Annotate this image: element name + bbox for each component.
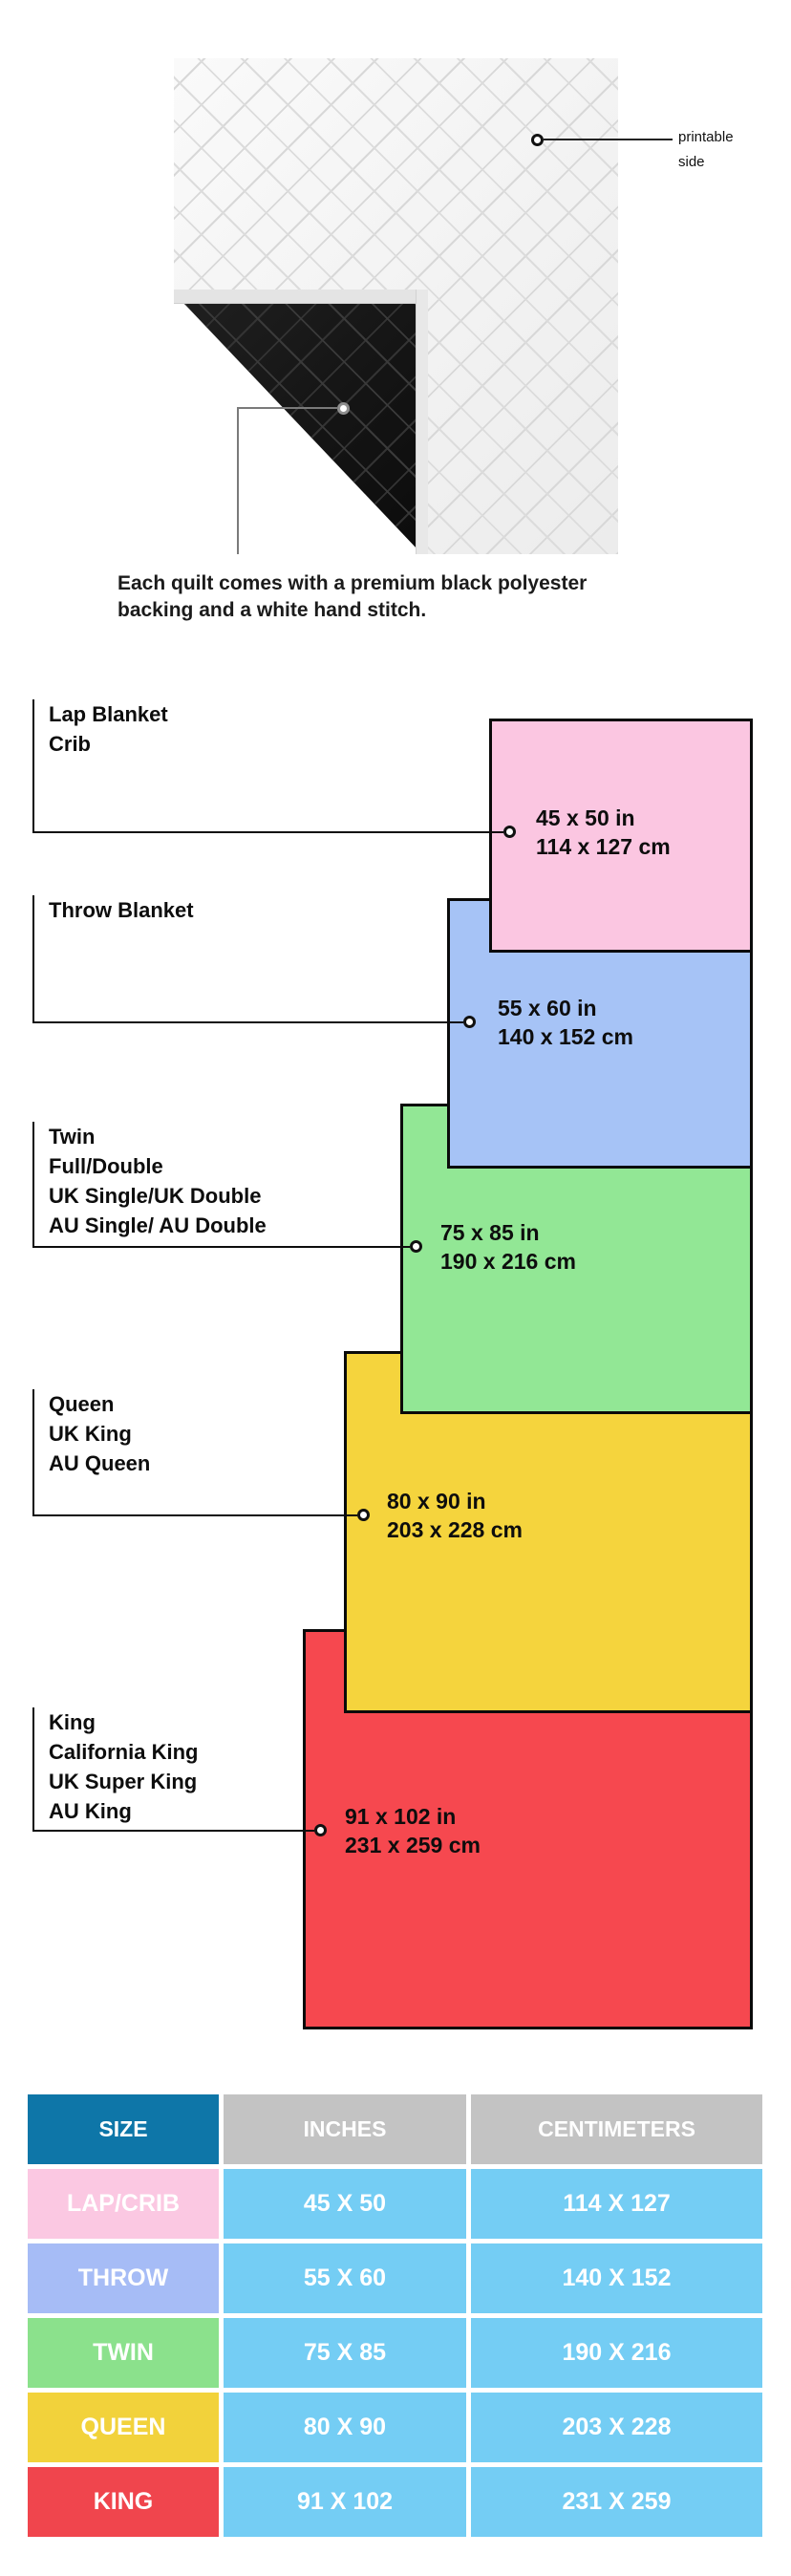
quilt-fold-edge <box>416 290 428 554</box>
lap-dimensions: 45 x 50 in 114 x 127 cm <box>536 804 671 861</box>
king-callout-rule <box>32 1707 34 1832</box>
lap-callout-rule <box>32 699 34 833</box>
quilt-black-backing-image <box>184 304 417 549</box>
table-row-twin-inches: 75 X 85 <box>224 2318 466 2388</box>
lap-callout-dot <box>503 826 516 838</box>
printable-side-label-line1: printable <box>678 125 734 150</box>
throw-callout-rule <box>32 895 34 1023</box>
queen-dim-cm: 203 x 228 cm <box>387 1515 523 1544</box>
table-row-queen-size: QUEEN <box>28 2393 219 2462</box>
table-header-inches: INCHES <box>224 2094 466 2164</box>
label-line: King <box>49 1707 198 1737</box>
printable-side-callout-dot <box>531 134 544 146</box>
table-row-throw-inches: 55 X 60 <box>224 2243 466 2313</box>
label-line: AU King <box>49 1796 198 1826</box>
twin-group-label: Twin Full/Double UK Single/UK Double AU … <box>49 1122 267 1240</box>
printable-side-label: printable side <box>678 125 734 175</box>
black-backing-callout-line-h <box>237 407 338 409</box>
quilt-size-infographic: printable side Each quilt comes with a p… <box>0 0 791 2576</box>
queen-callout-rule <box>32 1389 34 1516</box>
label-line: UK Super King <box>49 1767 198 1796</box>
throw-dim-cm: 140 x 152 cm <box>498 1022 633 1051</box>
queen-callout-dot <box>357 1509 370 1521</box>
twin-callout-dot <box>410 1240 422 1253</box>
king-group-label: King California King UK Super King AU Ki… <box>49 1707 198 1826</box>
label-line: Twin <box>49 1122 267 1151</box>
king-callout-line <box>32 1830 314 1832</box>
black-backing-callout-dot <box>337 402 350 415</box>
table-row-king-size: KING <box>28 2467 219 2537</box>
twin-dim-cm: 190 x 216 cm <box>440 1247 576 1276</box>
table-header-centimeters: CENTIMETERS <box>471 2094 762 2164</box>
twin-dimensions: 75 x 85 in 190 x 216 cm <box>440 1218 576 1276</box>
label-line: AU Single/ AU Double <box>49 1211 267 1240</box>
label-line: Queen <box>49 1389 150 1419</box>
table-row-queen-cm: 203 X 228 <box>471 2393 762 2462</box>
throw-callout-line <box>32 1021 463 1023</box>
lap-dim-cm: 114 x 127 cm <box>536 832 671 861</box>
table-row-lap-size: LAP/CRIB <box>28 2169 219 2239</box>
throw-dimensions: 55 x 60 in 140 x 152 cm <box>498 994 633 1051</box>
lap-group-label: Lap Blanket Crib <box>49 699 168 759</box>
table-header-size: SIZE <box>28 2094 219 2164</box>
lap-callout-line <box>32 831 503 833</box>
lap-dim-inches: 45 x 50 in <box>536 804 671 832</box>
table-row-queen-inches: 80 X 90 <box>224 2393 466 2462</box>
table-row-lap-inches: 45 X 50 <box>224 2169 466 2239</box>
queen-dimensions: 80 x 90 in 203 x 228 cm <box>387 1487 523 1544</box>
label-line: UK King <box>49 1419 150 1449</box>
quilt-caption-line1: Each quilt comes with a premium black po… <box>118 570 587 597</box>
table-row-king-inches: 91 X 102 <box>224 2467 466 2537</box>
twin-callout-rule <box>32 1122 34 1248</box>
label-line: Throw Blanket <box>49 895 194 925</box>
throw-dim-inches: 55 x 60 in <box>498 994 633 1022</box>
table-row-throw-size: THROW <box>28 2243 219 2313</box>
size-table: SIZE INCHES CENTIMETERS LAP/CRIB 45 X 50… <box>28 2094 762 2537</box>
king-dim-inches: 91 x 102 in <box>345 1802 481 1831</box>
queen-dim-inches: 80 x 90 in <box>387 1487 523 1515</box>
king-callout-dot <box>314 1824 327 1836</box>
table-row-throw-cm: 140 X 152 <box>471 2243 762 2313</box>
table-row-lap-cm: 114 X 127 <box>471 2169 762 2239</box>
quilt-fold-crease <box>174 290 427 304</box>
king-dim-cm: 231 x 259 cm <box>345 1831 481 1859</box>
king-dimensions: 91 x 102 in 231 x 259 cm <box>345 1802 481 1859</box>
label-line: Crib <box>49 729 168 759</box>
label-line: Full/Double <box>49 1151 267 1181</box>
label-line: California King <box>49 1737 198 1767</box>
label-line: UK Single/UK Double <box>49 1181 267 1211</box>
quilt-caption: Each quilt comes with a premium black po… <box>118 570 587 624</box>
printable-side-label-line2: side <box>678 150 734 175</box>
black-backing-callout-line-v <box>237 407 239 554</box>
twin-callout-line <box>32 1246 410 1248</box>
table-row-king-cm: 231 X 259 <box>471 2467 762 2537</box>
table-row-twin-cm: 190 X 216 <box>471 2318 762 2388</box>
twin-dim-inches: 75 x 85 in <box>440 1218 576 1247</box>
queen-callout-line <box>32 1514 357 1516</box>
label-line: Lap Blanket <box>49 699 168 729</box>
queen-group-label: Queen UK King AU Queen <box>49 1389 150 1478</box>
label-line: AU Queen <box>49 1449 150 1478</box>
table-row-twin-size: TWIN <box>28 2318 219 2388</box>
throw-callout-dot <box>463 1016 476 1028</box>
quilt-caption-line2: backing and a white hand stitch. <box>118 597 587 624</box>
printable-side-callout-line <box>544 139 673 140</box>
throw-group-label: Throw Blanket <box>49 895 194 925</box>
